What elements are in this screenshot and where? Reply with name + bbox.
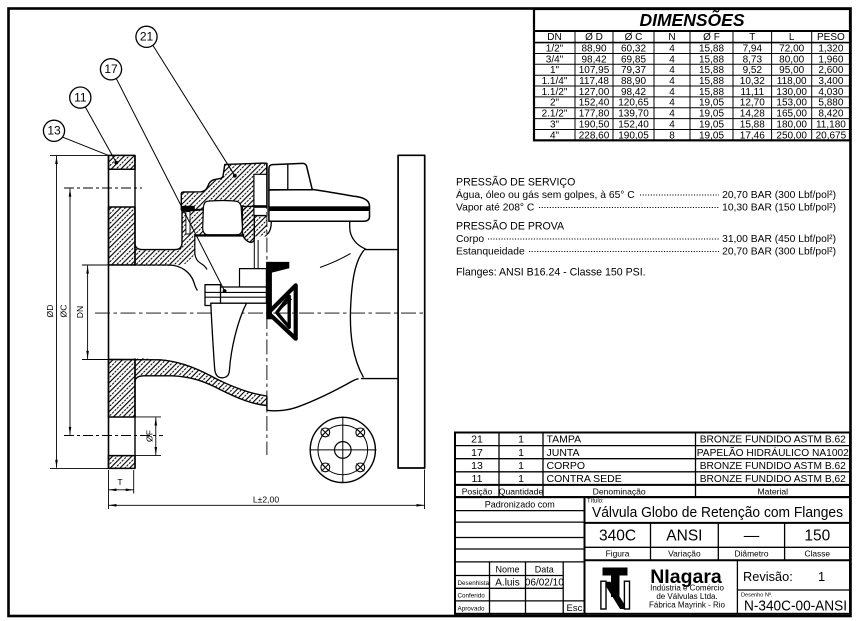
svg-text:PESO: PESO [817,32,845,43]
svg-text:—: — [744,528,760,545]
svg-text:98,42: 98,42 [621,87,646,98]
svg-text:Denominação: Denominação [593,486,646,496]
svg-text:165,00: 165,00 [776,109,807,120]
svg-text:10,30 BAR (150 Lbf/pol²): 10,30 BAR (150 Lbf/pol²) [722,203,836,214]
svg-text:Classe: Classe [804,549,830,559]
svg-text:PRESSÃO DE SERVIÇO: PRESSÃO DE SERVIÇO [456,176,575,189]
svg-text:ANSI: ANSI [666,528,702,545]
svg-text:20,70 BAR (300 Lbf/pol²): 20,70 BAR (300 Lbf/pol²) [722,190,836,201]
svg-text:8,420: 8,420 [818,109,843,120]
svg-text:3,400: 3,400 [818,76,843,87]
svg-text:150: 150 [804,528,830,545]
svg-text:4: 4 [669,87,675,98]
svg-text:177,80: 177,80 [579,109,610,120]
svg-text:JUNTA: JUNTA [547,447,580,459]
svg-text:4: 4 [669,98,675,109]
svg-text:Corpo: Corpo [456,234,484,245]
svg-text:11,180: 11,180 [816,119,846,130]
svg-text:153,00: 153,00 [776,98,807,109]
svg-text:11,11: 11,11 [741,87,765,98]
svg-text:06/02/10: 06/02/10 [525,577,564,588]
svg-text:4,030: 4,030 [818,87,843,98]
svg-text:Material: Material [758,486,789,496]
svg-text:8,73: 8,73 [743,54,763,65]
svg-text:14,28: 14,28 [740,109,765,120]
svg-text:228,60: 228,60 [579,130,610,141]
svg-text:15,88: 15,88 [699,87,724,98]
svg-text:4": 4" [550,130,560,141]
svg-text:BRONZE FUNDIDO ASTM B,62: BRONZE FUNDIDO ASTM B,62 [700,474,846,485]
svg-text:DN: DN [547,32,561,43]
svg-text:Água, óleo ou gás sem golpes,: Água, óleo ou gás sem golpes, à 65° C [456,188,635,201]
svg-text:21: 21 [471,434,483,446]
svg-text:19,05: 19,05 [699,98,724,109]
svg-text:31,00 BAR (450 Lbf/pol²): 31,00 BAR (450 Lbf/pol²) [722,234,836,245]
svg-text:Vapor até 208° C: Vapor até 208° C [456,203,535,214]
svg-text:A.luis: A.luis [495,577,519,588]
svg-text:11: 11 [472,473,483,485]
svg-text:BRONZE FUNDIDO ASTM B.62: BRONZE FUNDIDO ASTM B.62 [700,435,846,446]
svg-text:Flanges: ANSI B16.24 - Classe: Flanges: ANSI B16.24 - Classe 150 PSI. [456,267,646,279]
svg-text:118,00: 118,00 [777,76,807,87]
svg-text:1: 1 [518,447,524,459]
svg-text:15,88: 15,88 [740,119,765,130]
svg-text:4: 4 [669,76,675,87]
svg-text:T: T [117,477,123,487]
svg-text:Padronizado com: Padronizado com [485,500,555,510]
svg-text:T: T [749,32,755,43]
svg-text:Desenho Nº.: Desenho Nº. [741,592,773,599]
svg-text:PAPELÃO HIDRÁULICO NA1002: PAPELÃO HIDRÁULICO NA1002 [697,446,849,459]
svg-text:21: 21 [140,30,154,44]
svg-text:107,95: 107,95 [579,65,610,76]
svg-text:2.1/2": 2.1/2" [542,109,568,120]
svg-text:120,65: 120,65 [618,98,649,109]
svg-text:15,88: 15,88 [699,54,724,65]
svg-text:ØF: ØF [145,430,155,442]
svg-text:17,46: 17,46 [740,130,765,141]
svg-text:L: L [789,32,795,43]
svg-text:1/2": 1/2" [546,43,564,54]
svg-text:7,94: 7,94 [743,43,763,54]
svg-text:1: 1 [518,473,524,485]
svg-text:13: 13 [471,460,483,472]
svg-text:1: 1 [818,569,825,584]
svg-text:DN: DN [75,306,85,318]
svg-text:95,00: 95,00 [779,65,804,76]
svg-text:4: 4 [669,43,675,54]
svg-text:Data: Data [535,565,554,575]
svg-text:15,88: 15,88 [699,76,724,87]
svg-text:Fábrica Mayrink - Rio: Fábrica Mayrink - Rio [649,601,726,610]
svg-text:ØD: ØD [45,305,55,318]
svg-text:12,70: 12,70 [740,98,765,109]
svg-text:CORPO: CORPO [547,460,586,472]
svg-text:BRONZE FUNDIDO ASTM B.62: BRONZE FUNDIDO ASTM B.62 [700,461,846,472]
svg-text:60,32: 60,32 [621,43,646,54]
svg-text:117,48: 117,48 [579,76,609,87]
svg-text:DIMENSÕES: DIMENSÕES [639,9,744,30]
svg-text:N: N [668,32,675,43]
svg-text:9,52: 9,52 [743,65,763,76]
svg-text:10,32: 10,32 [740,76,765,87]
svg-text:Quantidade: Quantidade [499,486,544,496]
svg-text:CONTRA SEDE: CONTRA SEDE [547,473,622,485]
svg-text:3/4": 3/4" [546,54,564,65]
svg-text:Desenhista: Desenhista [458,580,490,587]
svg-text:Nome: Nome [495,565,519,575]
svg-text:Conferido: Conferido [458,593,486,600]
svg-text:8: 8 [669,130,675,141]
svg-text:TAMPA: TAMPA [547,434,582,446]
svg-text:Aprovado: Aprovado [458,605,485,612]
svg-text:3": 3" [550,119,560,130]
svg-text:80,00: 80,00 [779,54,804,65]
svg-text:4: 4 [669,109,675,120]
svg-text:5,880: 5,880 [818,98,843,109]
svg-text:Ø F: Ø F [703,32,720,43]
svg-text:1,960: 1,960 [818,54,843,65]
svg-text:250,00: 250,00 [776,130,807,141]
svg-text:L±2,00: L±2,00 [253,494,279,504]
svg-text:N-340C-00-ANSI: N-340C-00-ANSI [744,599,847,615]
svg-text:Posição: Posição [462,486,493,496]
svg-text:79,37: 79,37 [621,65,646,76]
svg-text:17: 17 [471,447,483,459]
svg-text:190,05: 190,05 [618,130,649,141]
svg-text:1.1/2": 1.1/2" [542,87,568,98]
svg-text:4: 4 [669,65,675,76]
svg-text:PRESSÃO DE PROVA: PRESSÃO DE PROVA [456,220,565,233]
svg-text:98,42: 98,42 [581,54,606,65]
svg-text:Diâmetro: Diâmetro [735,549,769,559]
svg-text:139,70: 139,70 [618,109,649,120]
svg-text:127,00: 127,00 [579,87,610,98]
svg-text:20,675: 20,675 [816,130,847,141]
svg-text:1: 1 [518,434,524,446]
svg-text:Figura: Figura [606,549,630,559]
svg-text:Válvula Globo de Retenção com: Válvula Globo de Retenção com Flanges [592,504,843,521]
svg-text:2": 2" [550,98,560,109]
svg-text:Revisão:: Revisão: [743,569,793,584]
svg-text:Esc.: Esc. [567,603,585,614]
svg-text:88,90: 88,90 [581,43,606,54]
svg-text:130,00: 130,00 [776,87,807,98]
svg-text:1": 1" [550,65,560,76]
svg-text:Estanqueidade: Estanqueidade [456,247,525,258]
svg-text:Variação: Variação [668,549,701,559]
svg-text:2,600: 2,600 [818,65,843,76]
svg-text:19,05: 19,05 [699,109,724,120]
svg-text:19,05: 19,05 [699,130,724,141]
svg-text:1,320: 1,320 [818,43,843,54]
svg-text:15,88: 15,88 [699,43,724,54]
svg-text:152,40: 152,40 [618,119,649,130]
svg-text:1: 1 [518,460,524,472]
svg-text:19,05: 19,05 [699,119,724,130]
svg-text:4: 4 [669,119,675,130]
svg-text:4: 4 [669,54,675,65]
svg-text:Ø D: Ø D [585,32,603,43]
svg-text:15,88: 15,88 [699,65,724,76]
svg-text:17: 17 [104,62,118,76]
svg-text:340C: 340C [599,528,636,545]
svg-text:88,90: 88,90 [621,76,646,87]
svg-text:ØC: ØC [59,305,69,318]
svg-text:11: 11 [74,91,87,105]
svg-text:190,50: 190,50 [579,119,610,130]
svg-text:180,00: 180,00 [776,119,807,130]
svg-text:152,40: 152,40 [579,98,610,109]
svg-text:Ø C: Ø C [625,32,643,43]
svg-text:20,70 BAR (300 Lbf/pol²): 20,70 BAR (300 Lbf/pol²) [722,247,836,258]
svg-text:13: 13 [47,124,61,138]
svg-text:72,00: 72,00 [779,43,804,54]
svg-text:1.1/4": 1.1/4" [542,76,568,87]
svg-text:69,85: 69,85 [621,54,646,65]
